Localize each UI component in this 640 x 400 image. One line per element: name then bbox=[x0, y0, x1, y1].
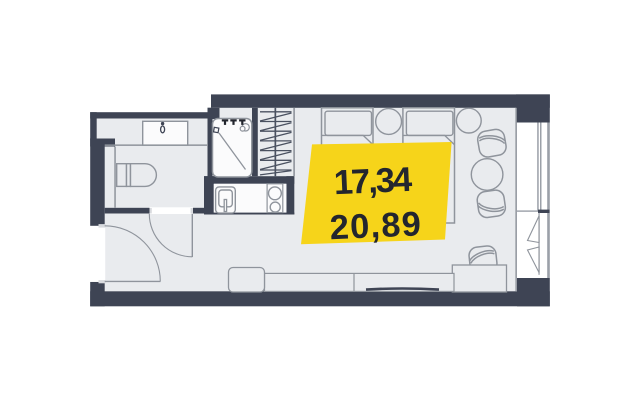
svg-text:17,34: 17,34 bbox=[333, 161, 413, 202]
svg-text:20,89: 20,89 bbox=[329, 205, 423, 247]
